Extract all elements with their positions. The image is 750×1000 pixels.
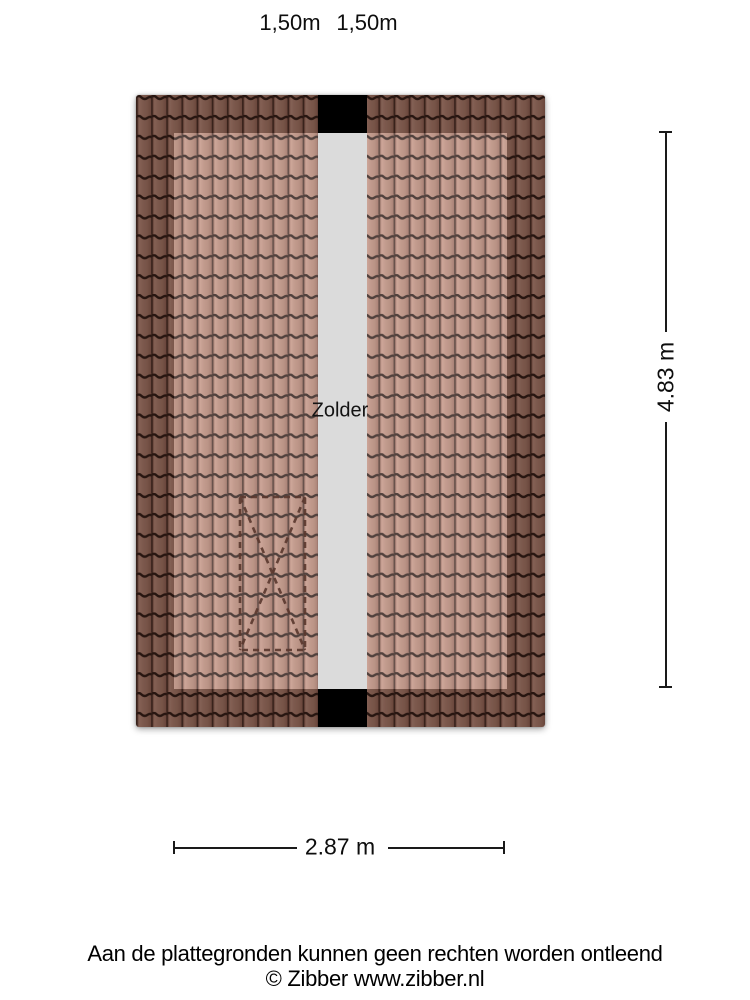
roof-right-half-dimension-label: 1,50m [336, 11, 397, 34]
dimension-cap [659, 686, 672, 688]
height-dimension: 4.83 m [659, 131, 672, 688]
width-dimension: 2.87 m [173, 841, 505, 854]
ridge-block-bottom [318, 689, 367, 727]
dimension-line-segment [665, 422, 667, 687]
dimension-cap [503, 841, 505, 854]
room-label: Zolder [312, 400, 369, 423]
dimension-line-segment [388, 847, 504, 849]
roof-left-half-dimension-label: 1,50m [259, 11, 320, 34]
floorplan-page: 1,50m 1,50m [0, 0, 750, 1000]
roof-plan: Zolder [136, 95, 545, 727]
dimension-line-segment [174, 847, 297, 849]
copyright-text: © Zibber www.zibber.nl [0, 966, 750, 991]
footer: Aan de plattegronden kunnen geen rechten… [0, 941, 750, 991]
width-dimension-label: 2.87 m [305, 834, 375, 861]
disclaimer-text: Aan de plattegronden kunnen geen rechten… [0, 941, 750, 966]
ridge-block-top [318, 95, 367, 133]
dimension-line-segment [665, 132, 667, 332]
height-dimension-label: 4.83 m [653, 342, 680, 412]
